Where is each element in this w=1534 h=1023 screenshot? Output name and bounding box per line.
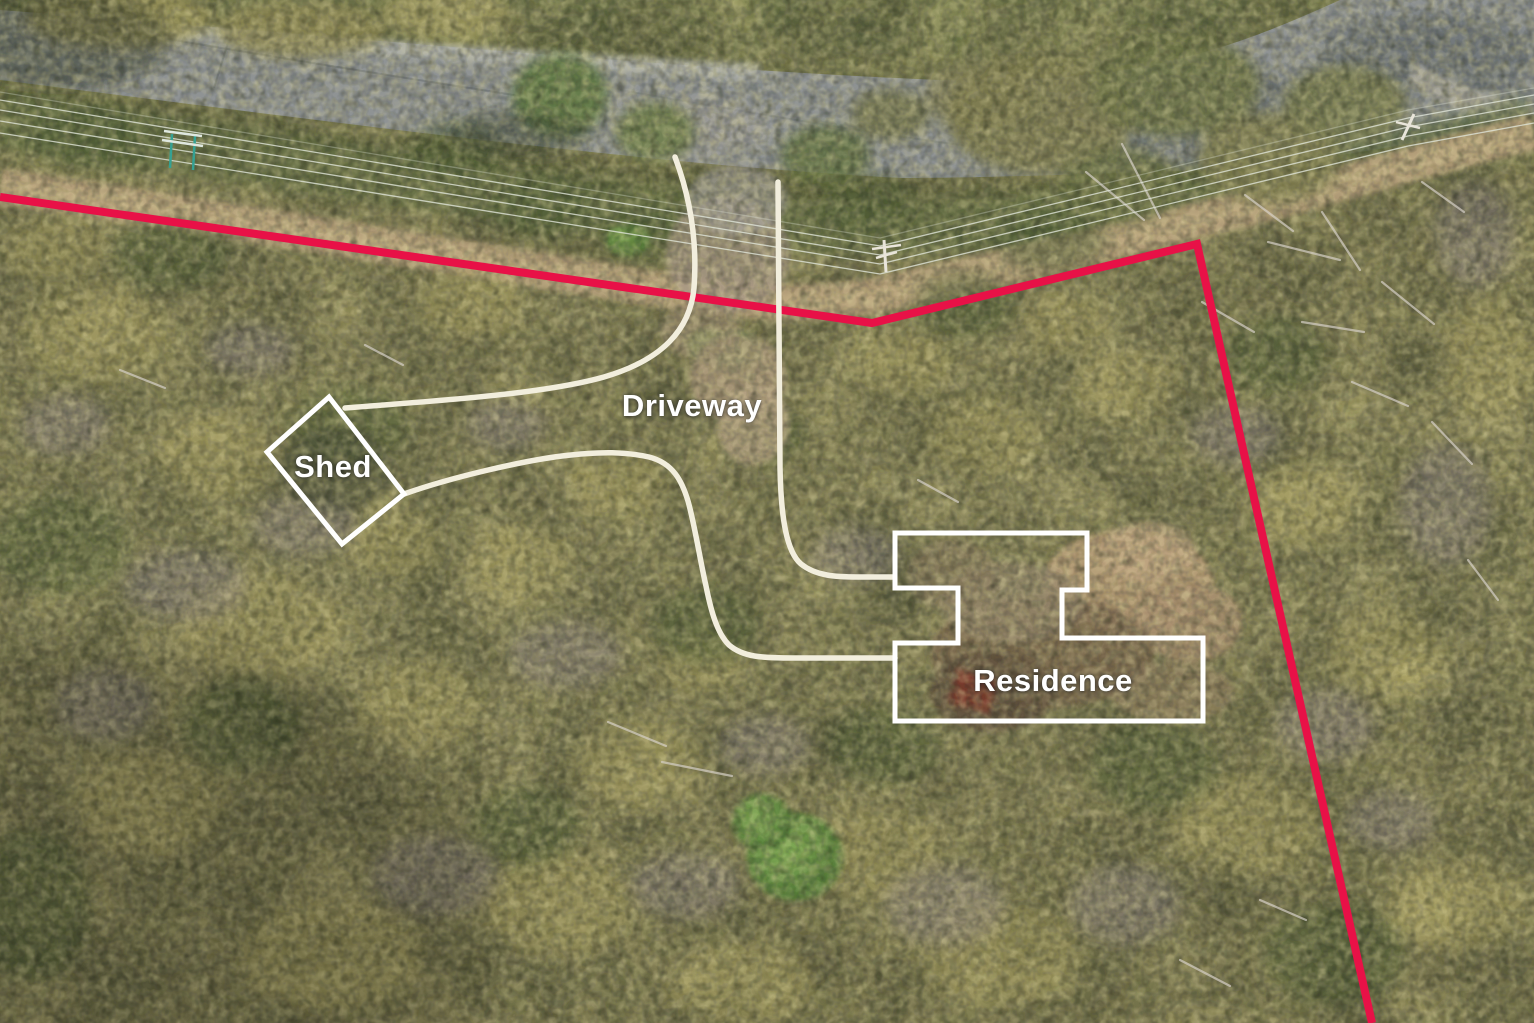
driveway-label: Driveway — [622, 388, 762, 424]
aerial-property-photo: Shed Driveway Residence — [0, 0, 1534, 1023]
shed-label: Shed — [294, 449, 372, 485]
residence-label: Residence — [973, 663, 1133, 699]
aerial-photo-canvas — [0, 0, 1534, 1023]
